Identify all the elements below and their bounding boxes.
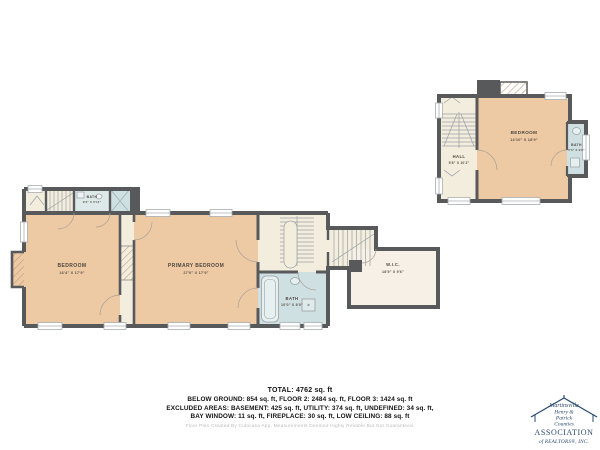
sink-icon	[291, 278, 300, 285]
logo-line-4: Counties	[554, 422, 574, 428]
floor3-hall-room	[441, 96, 477, 201]
logo-line-1: Martinsville	[548, 403, 579, 409]
floor3-plan: BEDROOM 14'10" X 18'9" HALL 5'8" X 10'2"…	[436, 80, 590, 205]
floor2-wic-dims: 18'5" X 9'6"	[382, 270, 404, 274]
stair-rail	[284, 221, 297, 268]
floor2-bedroom-dims: 16'4" X 17'9"	[59, 271, 84, 275]
floor3-hall-dims: 5'8" X 10'2"	[449, 161, 470, 165]
chimney-block	[477, 80, 500, 96]
floor2-bath-dims: 10'0" X 8'0"	[281, 303, 303, 307]
floor3-bath-label: BATH	[571, 143, 582, 147]
floor-plan-drawing: BEDROOM 14'10" X 18'9" HALL 5'8" X 10'2"…	[0, 0, 600, 450]
floor3-bedroom-dims: 14'10" X 18'9"	[510, 138, 538, 142]
floor2-wic-label: W.I.C.	[386, 262, 400, 267]
floors-area-line: BELOW GROUND: 854 sq. ft, FLOOR 2: 2484 …	[0, 396, 600, 403]
bathtub-icon	[262, 276, 279, 322]
logo-association: ASSOCIATION	[534, 428, 593, 437]
floor2-primary-label: PRIMARY BEDROOM	[168, 263, 224, 269]
floor-plan-page: BEDROOM 14'10" X 18'9" HALL 5'8" X 10'2"…	[0, 0, 600, 450]
fireplace-hatch	[120, 246, 134, 280]
realtor-logo: Martinsville Henry & Patrick Counties AS…	[527, 393, 600, 448]
logo-realtors: of REALTORS®, INC.	[539, 438, 589, 445]
floor3-bedroom-label: BEDROOM	[511, 130, 538, 135]
sink-icon	[573, 128, 581, 135]
floor3-bath-dims: 5'6" X 9'8"	[568, 148, 585, 152]
bay-window-hatch	[12, 252, 24, 287]
floor2-wic-room	[349, 249, 438, 307]
total-area-line: TOTAL: 4762 sq. ft	[0, 387, 600, 394]
floor2-primary-room	[134, 213, 258, 326]
floor2-primary-dims: 27'0" X 17'9"	[183, 271, 208, 275]
excluded-areas-line: EXCLUDED AREAS: BASEMENT: 425 sq. ft, UT…	[0, 405, 600, 412]
floor2-bedroom-label: BEDROOM	[58, 263, 87, 269]
toilet-icon	[77, 192, 84, 198]
low-ceiling-hatch	[500, 82, 527, 96]
floor2-bedroom-room	[24, 213, 134, 326]
floor3-bedroom-room	[477, 96, 570, 201]
floor2-bath-small-dims: 9'3" X 5'11"	[83, 200, 102, 204]
floor3-hall-label: HALL	[453, 154, 466, 159]
wall-chunk	[130, 187, 140, 214]
area-summary: TOTAL: 4762 sq. ft BELOW GROUND: 854 sq.…	[0, 387, 600, 429]
realtor-logo-drawing: Martinsville Henry & Patrick Counties AS…	[527, 393, 600, 448]
floor2-bath-label: BATH	[286, 296, 299, 301]
disclaimer-line: Floor Plan Created By Cubicasa App. Meas…	[0, 424, 600, 429]
excluded-areas-line2: BAY WINDOW: 11 sq. ft, FIREPLACE: 30 sq.…	[0, 413, 600, 420]
floor2-plan: BEDROOM 16'4" X 17'9" PRIMARY BEDROOM 27…	[12, 186, 438, 330]
toilet-icon	[571, 158, 580, 167]
floor2-bath-small-label: BATH	[87, 195, 98, 199]
